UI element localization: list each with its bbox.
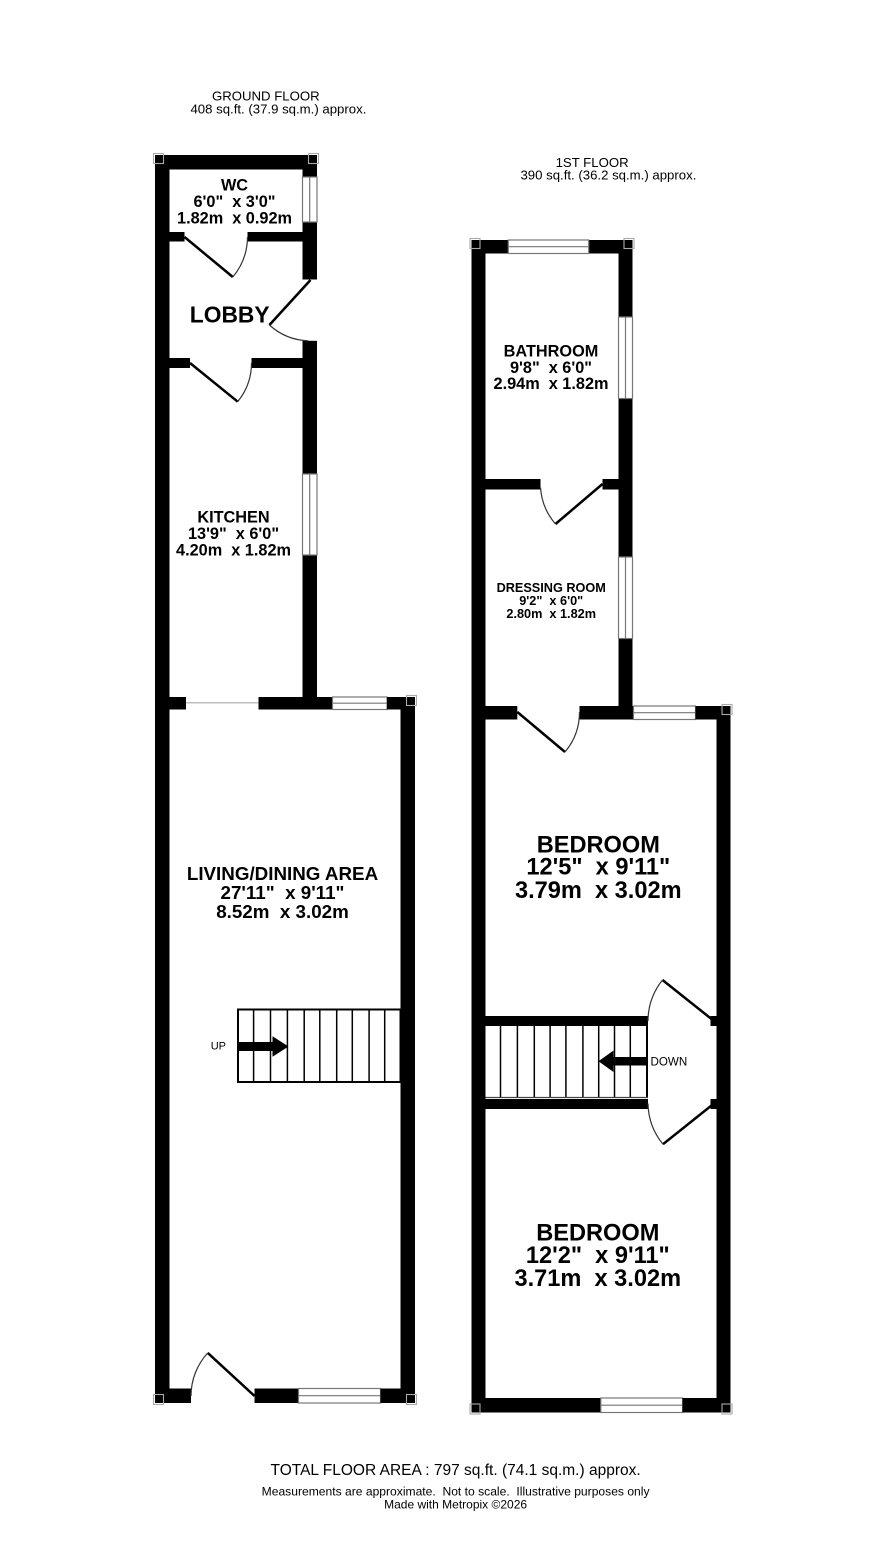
svg-text:27'11" x 9'11": 27'11" x 9'11" [221,882,345,903]
svg-text:KITCHEN: KITCHEN [197,509,269,527]
svg-text:UP: UP [211,1041,226,1053]
svg-text:9'2" x 6'0": 9'2" x 6'0" [519,594,583,608]
svg-text:408 sq.ft. (37.9 sq.m.) approx: 408 sq.ft. (37.9 sq.m.) approx. [190,102,366,117]
svg-text:12'5" x 9'11": 12'5" x 9'11" [526,855,670,881]
svg-text:4.20m x 1.82m: 4.20m x 1.82m [176,542,291,560]
svg-text:DRESSING ROOM: DRESSING ROOM [497,581,606,595]
svg-text:3.79m x 3.02m: 3.79m x 3.02m [515,878,682,904]
svg-text:8.52m x 3.02m: 8.52m x 3.02m [216,901,349,922]
svg-text:WC: WC [221,177,248,195]
svg-text:12'2" x 9'11": 12'2" x 9'11" [526,1243,670,1269]
svg-text:390 sq.ft. (36.2 sq.m.) approx: 390 sq.ft. (36.2 sq.m.) approx. [520,168,696,183]
svg-text:2.80m x 1.82m: 2.80m x 1.82m [506,607,596,621]
svg-text:13'9" x 6'0": 13'9" x 6'0" [188,525,279,543]
svg-text:Measurements are approximate.: Measurements are approximate. Not to sca… [262,1485,651,1499]
svg-text:Made with Metropix ©2026: Made with Metropix ©2026 [384,1498,527,1512]
svg-text:LIVING/DINING AREA: LIVING/DINING AREA [187,863,379,884]
svg-text:6'0" x 3'0": 6'0" x 3'0" [193,193,275,211]
svg-text:3.71m x 3.02m: 3.71m x 3.02m [515,1266,682,1292]
svg-text:1.82m x 0.92m: 1.82m x 0.92m [177,210,292,228]
svg-text:BATHROOM: BATHROOM [504,343,599,361]
svg-text:LOBBY: LOBBY [190,302,270,328]
svg-text:2.94m x 1.82m: 2.94m x 1.82m [494,375,609,393]
svg-text:TOTAL FLOOR AREA : 797 sq.ft.: TOTAL FLOOR AREA : 797 sq.ft. (74.1 sq.m… [271,1462,641,1479]
svg-text:DOWN: DOWN [651,1055,688,1068]
